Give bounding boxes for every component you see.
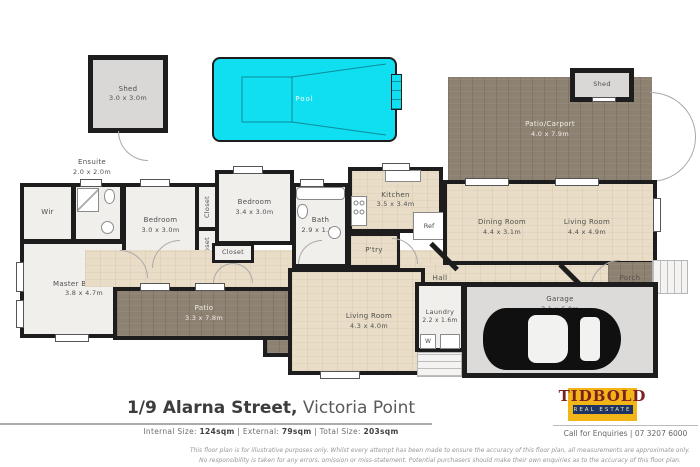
toilet-icon: [104, 189, 115, 204]
address-primary: 1/9 Alarna Street,: [127, 398, 298, 418]
total-size-label: Total Size:: [320, 427, 364, 436]
room-dining-label: Dining Room 4.4 x 3.1m: [467, 218, 537, 237]
shower-icon: [77, 188, 99, 212]
window: [16, 262, 24, 292]
disclaimer-line-2: No responsibility is taken for any error…: [199, 457, 681, 464]
room-shed-left-label: Shed 3.0 x 3.0m: [109, 85, 147, 104]
window: [320, 371, 360, 379]
room-bedroom-2-label: Bedroom 3.4 x 3.0m: [236, 198, 274, 217]
window: [140, 283, 170, 291]
washing-machine-icon: W: [420, 334, 436, 349]
logo-name: TIDBOLD: [559, 388, 647, 405]
disclaimer: This floor plan is for illustrative purp…: [160, 446, 700, 466]
address-heading: 1/9 Alarna Street, Victoria Point: [110, 398, 432, 418]
pantry-door-arc: [392, 238, 418, 264]
window: [233, 166, 263, 174]
room-wir: Wir: [20, 183, 75, 243]
contact-line: Call for Enquiries | 07 3207 6000: [553, 429, 698, 438]
total-size-value: 203sqm: [363, 427, 398, 436]
room-bedroom-1-label: Bedroom 3.0 x 3.0m: [142, 216, 180, 235]
pool-perspective-lines: [214, 59, 395, 140]
stove-icon: [351, 196, 367, 226]
room-bedroom-2: Bedroom 3.4 x 3.0m: [215, 170, 294, 245]
car-rear-window: [580, 317, 600, 361]
window: [140, 179, 170, 187]
heading-underline: [0, 423, 432, 425]
room-closet-3: Closet: [212, 243, 254, 263]
kitchen-sink-icon: [385, 170, 421, 182]
pool: Pool: [212, 57, 397, 142]
pool-steps: [391, 74, 402, 110]
car-windshield: [528, 315, 568, 363]
window: [16, 300, 24, 328]
toilet-icon: [297, 204, 308, 219]
external-size-value: 79sqm: [282, 427, 312, 436]
internal-size-label: Internal Size:: [143, 427, 199, 436]
room-wir-label: Wir: [41, 208, 54, 218]
window: [653, 198, 661, 232]
external-size-label: External:: [243, 427, 282, 436]
fridge-label: Ref: [424, 222, 435, 230]
room-kitchen-label: Kitchen 3.5 x 3.4m: [377, 191, 415, 210]
basin-icon: [101, 221, 114, 234]
room-patio: Patio 3.3 x 7.8m: [113, 287, 295, 340]
shed-door-arc: [118, 131, 148, 161]
room-laundry-label: Laundry 2.2 x 1.6m: [422, 308, 457, 325]
window: [382, 163, 410, 171]
shed-right-door-gap: [592, 97, 616, 102]
internal-size-value: 124sqm: [200, 427, 235, 436]
room-living-main-label: Living Room 4.4 x 4.9m: [552, 218, 622, 237]
window: [80, 179, 102, 187]
room-patio-label: Patio 3.3 x 7.8m: [185, 304, 223, 323]
room-ensuite-label: Ensuite 2.0 x 2.0m: [52, 158, 132, 177]
room-closet-1-label: Closet: [203, 196, 211, 218]
logo-tagline: REAL ESTATE: [573, 405, 633, 414]
separator: |: [235, 427, 243, 436]
disclaimer-line-1: This floor plan is for illustrative purp…: [190, 447, 690, 454]
room-closet-3-label: Closet: [222, 248, 244, 257]
room-living-2: Living Room 4.3 x 4.0m: [288, 268, 425, 375]
room-shed-left: Shed 3.0 x 3.0m: [88, 55, 168, 133]
size-summary: Internal Size: 124sqm | External: 79sqm …: [110, 427, 432, 436]
window: [300, 179, 324, 187]
window: [195, 283, 225, 291]
laundry-tub-icon: [440, 334, 460, 349]
logo-underline: [553, 425, 698, 426]
address-secondary: Victoria Point: [297, 398, 415, 418]
basin-icon: [328, 226, 341, 239]
room-shed-right-label: Shed: [593, 80, 611, 89]
window: [55, 334, 89, 342]
tidbold-logo: TIDBOLD REAL ESTATE: [568, 388, 637, 421]
room-patio-carport-label: Patio/Carport 4.0 x 7.9m: [525, 120, 575, 139]
separator: |: [311, 427, 319, 436]
washer-label: W: [425, 338, 431, 345]
laundry-steps: [417, 352, 462, 377]
floor-plan: Shed 3.0 x 3.0m Pool Patio/Carport 4.0 x…: [0, 0, 700, 467]
carport-gate-arc-top: [650, 92, 696, 137]
window: [555, 178, 599, 186]
room-living-2-label: Living Room 4.3 x 4.0m: [321, 312, 392, 331]
fridge-box: Ref: [413, 212, 445, 240]
sliding-door: [465, 178, 509, 186]
room-pantry-label: P'try: [365, 246, 382, 256]
bathtub-icon: [296, 187, 345, 200]
carport-gate-arc-bottom: [650, 137, 696, 182]
